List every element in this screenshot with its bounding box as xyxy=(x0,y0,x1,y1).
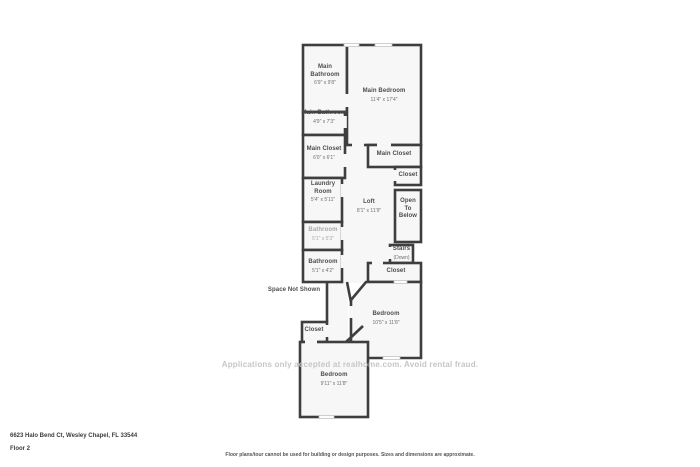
label-bathroom-upper: Bathroom 5'1" x 5'3" xyxy=(301,227,345,242)
label-space-not-shown: Space Not Shown xyxy=(266,287,322,295)
room-name: Loft xyxy=(345,199,393,207)
room-dims: 6'0" x 6'1" xyxy=(301,155,347,161)
label-bathroom-lower: Bathroom 5'1" x 4'2" xyxy=(301,259,345,274)
room-dims: 5'1" x 5'3" xyxy=(301,236,345,242)
room-name: Main Closet xyxy=(368,151,420,159)
room-name: Bathroom xyxy=(301,227,345,235)
room-name: Closet xyxy=(394,172,422,180)
room-name: Main Bathroom xyxy=(301,110,347,118)
label-bedroom-mid: Bedroom 10'5" x 11'8" xyxy=(352,311,420,326)
room-name: Closet xyxy=(300,327,328,335)
room-sub: (Down) xyxy=(388,255,415,261)
room-name: Bedroom xyxy=(352,311,420,319)
anti-fraud-watermark: Applications only accepted at realhome.c… xyxy=(205,360,495,369)
label-laundry-room: Laundry Room 5'4" x 5'11" xyxy=(305,181,341,203)
room-name: Stairs xyxy=(388,246,415,254)
label-closet-small: Closet xyxy=(300,327,328,335)
room-name: Main Bathroom xyxy=(303,64,347,79)
room-dims: 4'9" x 7'3" xyxy=(301,119,347,125)
property-address: 6623 Halo Bend Ct, Wesley Chapel, FL 335… xyxy=(10,433,137,439)
room-dims: 9'11" x 11'8" xyxy=(300,381,368,387)
room-name: Laundry Room xyxy=(305,181,341,196)
label-main-bathroom-upper: Main Bathroom 6'9" x 9'8" xyxy=(303,64,347,86)
room-dims: 5'4" x 5'11" xyxy=(305,197,341,203)
floor-plan-drawing xyxy=(0,0,700,467)
room-name: Closet xyxy=(380,268,412,276)
label-main-closet-left: Main Closet 6'0" x 6'1" xyxy=(301,146,347,161)
label-loft: Loft 8'1" x 11'9" xyxy=(345,199,393,214)
room-name: Main Closet xyxy=(301,146,347,154)
label-open-to-below: Open To Below xyxy=(396,198,420,221)
disclaimer-text: Floor plans/tour cannot be used for buil… xyxy=(0,452,700,458)
label-main-bedroom: Main Bedroom 11'4" x 17'4" xyxy=(347,88,421,103)
room-dims: 8'1" x 11'9" xyxy=(345,208,393,214)
room-name: Open To Below xyxy=(396,198,420,221)
label-main-closet-right: Main Closet xyxy=(368,151,420,159)
room-name: Main Bedroom xyxy=(347,88,421,96)
floor-plan-page: Main Bathroom 6'9" x 9'8" Main Bedroom 1… xyxy=(0,0,700,467)
room-name: Bathroom xyxy=(301,259,345,267)
room-name: Bedroom xyxy=(300,372,368,380)
label-closet-upper-right: Closet xyxy=(394,172,422,180)
room-dims: 5'1" x 4'2" xyxy=(301,268,345,274)
room-dims: 6'9" x 9'8" xyxy=(303,80,347,86)
room-dims: 11'4" x 17'4" xyxy=(347,97,421,103)
room-name: Space Not Shown xyxy=(266,287,322,295)
label-stairs: Stairs (Down) xyxy=(388,246,415,261)
label-main-bathroom-lower: Main Bathroom 4'9" x 7'3" xyxy=(301,110,347,125)
room-dims: 10'5" x 11'8" xyxy=(352,320,420,326)
label-closet-mid-right: Closet xyxy=(380,268,412,276)
label-bedroom-bottom: Bedroom 9'11" x 11'8" xyxy=(300,372,368,387)
